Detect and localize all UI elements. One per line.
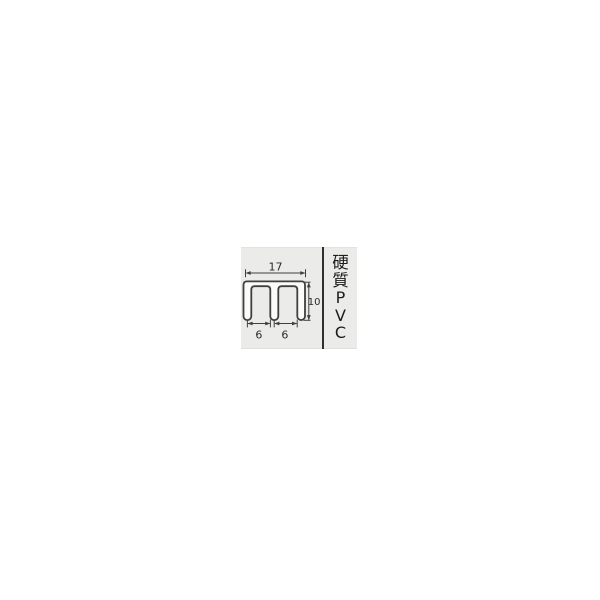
material-char-shitsu: 質 [332,272,349,290]
dimension-right-channel: 6 [274,320,297,342]
dimension-overall-height: 10 [304,282,321,320]
dim-label-overall-width: 17 [269,260,283,273]
dim-label-left-channel: 6 [255,329,262,342]
material-char-p: P [336,289,346,307]
dim-label-overall-height: 10 [308,297,321,308]
cross-section-diagram: 17 10 6 [241,247,323,349]
dimension-overall-width: 17 [246,260,306,277]
profile-shape [244,281,306,320]
material-label: 硬 質 P V C [324,247,357,349]
product-image: 17 10 6 [0,0,600,600]
material-char-c: C [335,324,346,342]
dimension-left-channel: 6 [247,320,270,342]
material-char-kou: 硬 [332,254,349,272]
material-char-v: V [335,307,346,325]
spec-panel: 17 10 6 [241,247,357,349]
dim-label-right-channel: 6 [281,329,288,342]
